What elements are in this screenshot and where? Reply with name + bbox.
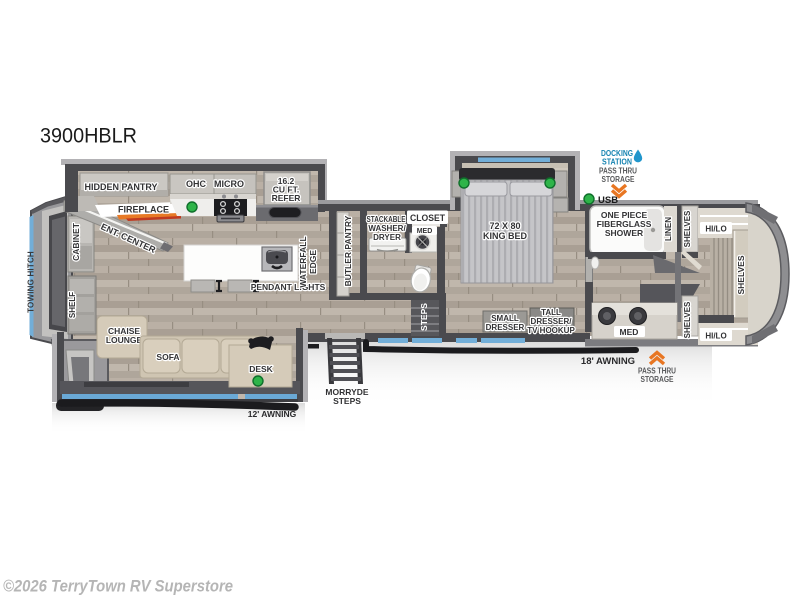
svg-text:STATION: STATION xyxy=(602,158,632,167)
svg-text:3900HBLR: 3900HBLR xyxy=(40,125,137,148)
svg-text:MICRO: MICRO xyxy=(214,179,244,189)
svg-text:STORAGE: STORAGE xyxy=(602,175,636,184)
svg-text:REFER: REFER xyxy=(272,193,301,203)
svg-text:DRESSER: DRESSER xyxy=(486,323,525,332)
svg-text:MED: MED xyxy=(620,327,639,337)
svg-text:SHELVES: SHELVES xyxy=(683,210,692,247)
svg-text:SHOWER: SHOWER xyxy=(605,228,643,238)
svg-text:HI/LO: HI/LO xyxy=(705,225,726,234)
svg-text:DESK: DESK xyxy=(249,364,273,374)
svg-text:DRYER: DRYER xyxy=(373,233,401,242)
svg-text:SHELVES: SHELVES xyxy=(683,301,692,338)
svg-text:MED: MED xyxy=(417,228,433,235)
svg-text:STEPS: STEPS xyxy=(333,396,361,406)
svg-text:DRESSER/: DRESSER/ xyxy=(531,317,573,326)
svg-text:HIDDEN PANTRY: HIDDEN PANTRY xyxy=(84,182,157,192)
svg-text:CABINET: CABINET xyxy=(71,222,81,261)
svg-text:18' AWNING: 18' AWNING xyxy=(581,356,635,367)
svg-text:WASHER/: WASHER/ xyxy=(368,224,406,233)
svg-text:WATERFALL: WATERFALL xyxy=(298,236,308,287)
svg-text:LOUNGE: LOUNGE xyxy=(106,335,143,345)
svg-text:HI/LO: HI/LO xyxy=(705,332,726,341)
svg-text:TALL: TALL xyxy=(541,308,561,317)
svg-text:STEPS: STEPS xyxy=(419,303,429,331)
svg-text:TOWING HITCH: TOWING HITCH xyxy=(27,251,36,313)
svg-text:72 X 80: 72 X 80 xyxy=(489,221,520,231)
svg-text:TV HOOKUP: TV HOOKUP xyxy=(527,326,575,335)
svg-text:©2026 TerryTown RV Superstore: ©2026 TerryTown RV Superstore xyxy=(3,577,233,596)
svg-text:SHELF: SHELF xyxy=(68,292,77,318)
svg-text:FIREPLACE: FIREPLACE xyxy=(118,205,169,215)
svg-text:STACKABLE: STACKABLE xyxy=(367,215,407,224)
svg-text:SOFA: SOFA xyxy=(156,352,179,362)
svg-text:SMALL: SMALL xyxy=(491,314,519,323)
svg-text:LINEN: LINEN xyxy=(664,217,673,241)
svg-text:EDGE: EDGE xyxy=(308,250,318,274)
svg-text:CLOSET: CLOSET xyxy=(410,213,445,223)
svg-text:KING BED: KING BED xyxy=(483,231,528,241)
svg-text:USB: USB xyxy=(598,195,618,206)
svg-text:PENDANT LIGHTS: PENDANT LIGHTS xyxy=(251,282,326,292)
svg-text:SHELVES: SHELVES xyxy=(736,255,746,294)
svg-text:BUTLER PANTRY: BUTLER PANTRY xyxy=(343,215,353,286)
svg-text:OHC: OHC xyxy=(186,179,207,189)
svg-text:STORAGE: STORAGE xyxy=(641,375,675,384)
svg-text:12' AWNING: 12' AWNING xyxy=(248,409,297,419)
